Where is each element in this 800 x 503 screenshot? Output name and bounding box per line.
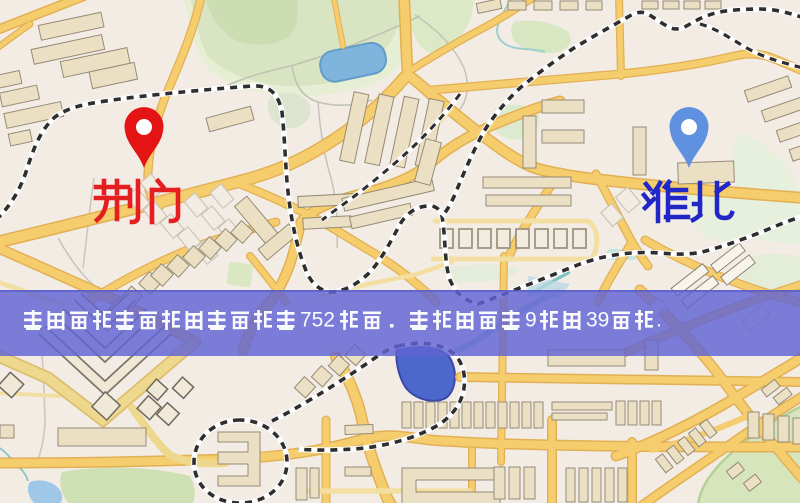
svg-text:.: . (656, 309, 662, 332)
svg-text:9: 9 (525, 309, 537, 332)
svg-text:39: 39 (586, 309, 609, 332)
svg-text:752: 752 (300, 309, 335, 332)
